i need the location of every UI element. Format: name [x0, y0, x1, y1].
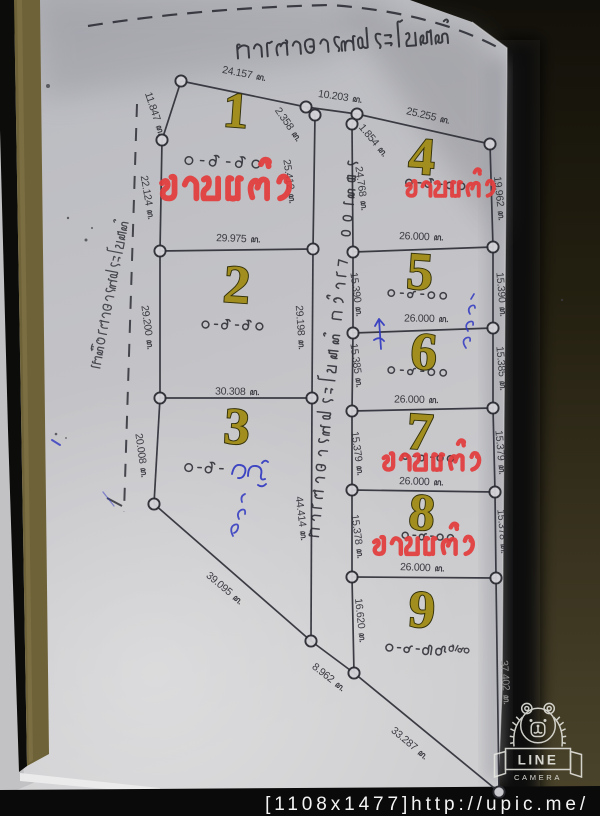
svg-text:LINE: LINE	[518, 753, 559, 768]
svg-text:[1108x1477]http://upic.me/: [1108x1477]http://upic.me/	[265, 794, 589, 815]
svg-text:29.198: 29.198	[293, 305, 307, 337]
svg-text:CAMERA: CAMERA	[514, 773, 562, 782]
svg-text:9: 9	[407, 580, 437, 640]
svg-text:37.402: 37.402	[498, 660, 512, 692]
svg-text:29.975: 29.975	[216, 232, 247, 245]
svg-text:2: 2	[221, 254, 252, 316]
svg-text:1: 1	[222, 81, 251, 139]
svg-text:26.000: 26.000	[400, 561, 431, 574]
svg-text:26.000: 26.000	[399, 230, 430, 243]
svg-text:3: 3	[222, 398, 252, 457]
svg-text:4: 4	[407, 127, 437, 187]
svg-text:30.308: 30.308	[215, 385, 246, 398]
svg-text:7: 7	[405, 402, 435, 462]
